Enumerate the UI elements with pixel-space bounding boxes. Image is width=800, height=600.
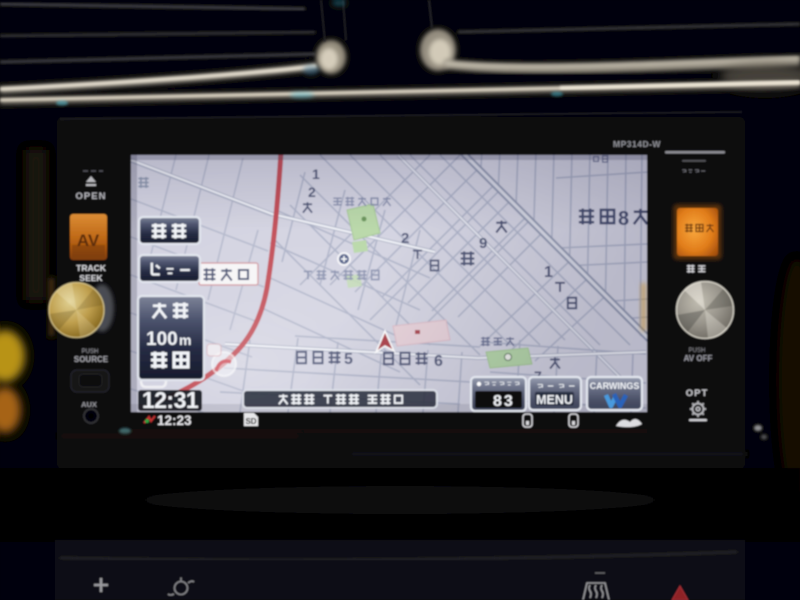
svg-text:12:23: 12:23	[157, 413, 192, 428]
svg-text:SD: SD	[245, 417, 256, 426]
svg-text:TRACK: TRACK	[76, 263, 107, 273]
svg-text:12:31: 12:31	[142, 387, 199, 413]
svg-text:OPEN: OPEN	[76, 191, 107, 202]
svg-text:AUX: AUX	[81, 400, 97, 409]
svg-text:100: 100	[146, 329, 178, 350]
svg-text:OPT: OPT	[686, 388, 709, 399]
svg-text:MP314D-W: MP314D-W	[613, 139, 661, 149]
svg-text:SEEK: SEEK	[79, 273, 103, 283]
svg-text:CARWINGS: CARWINGS	[590, 381, 640, 391]
svg-text:SOURCE: SOURCE	[74, 355, 109, 364]
svg-text:AV: AV	[77, 231, 100, 250]
svg-text:MENU: MENU	[536, 393, 573, 407]
svg-text:AV OFF: AV OFF	[684, 354, 713, 363]
svg-text:m: m	[179, 332, 191, 348]
svg-text:83: 83	[493, 393, 515, 410]
